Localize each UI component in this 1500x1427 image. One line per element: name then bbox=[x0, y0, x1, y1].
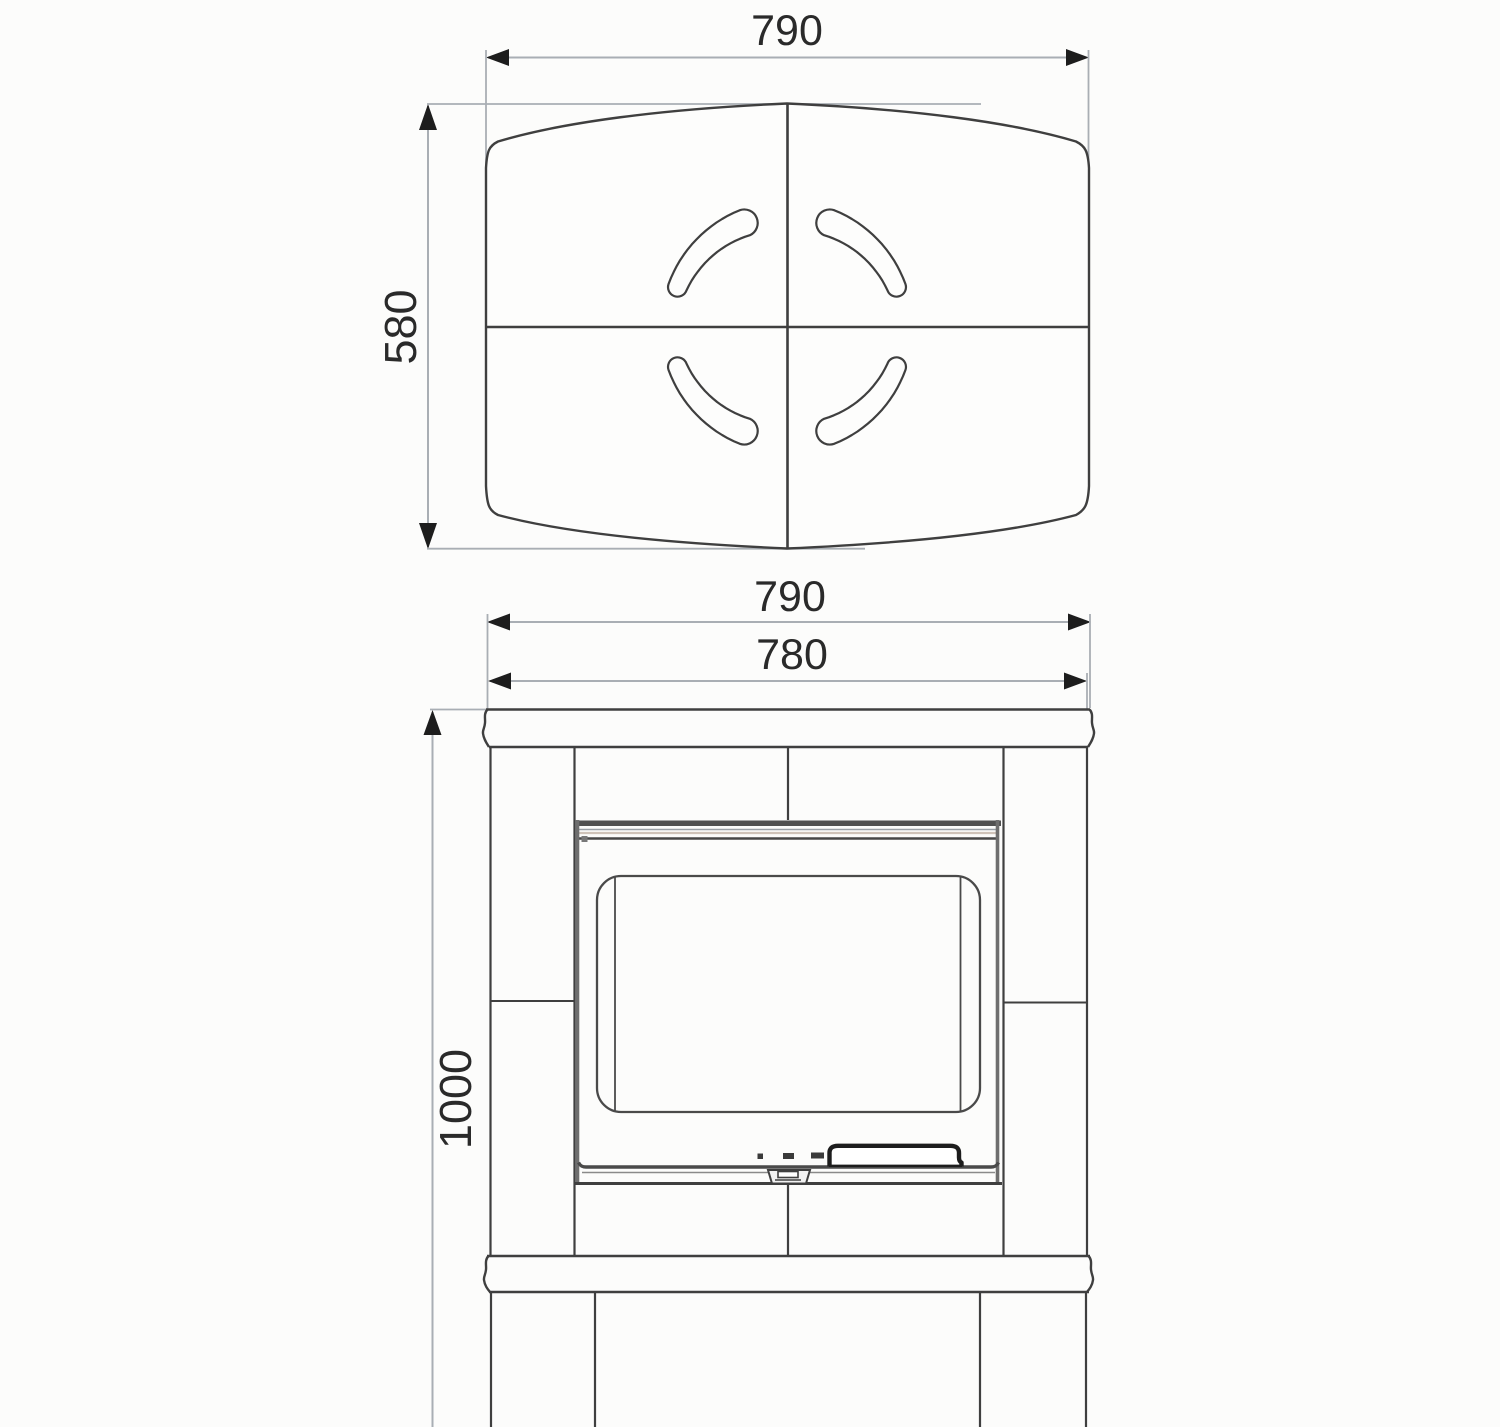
svg-text:780: 780 bbox=[756, 631, 828, 679]
svg-text:1000: 1000 bbox=[430, 1049, 481, 1149]
svg-text:790: 790 bbox=[751, 7, 823, 55]
svg-text:790: 790 bbox=[754, 573, 826, 621]
svg-text:580: 580 bbox=[375, 289, 426, 364]
